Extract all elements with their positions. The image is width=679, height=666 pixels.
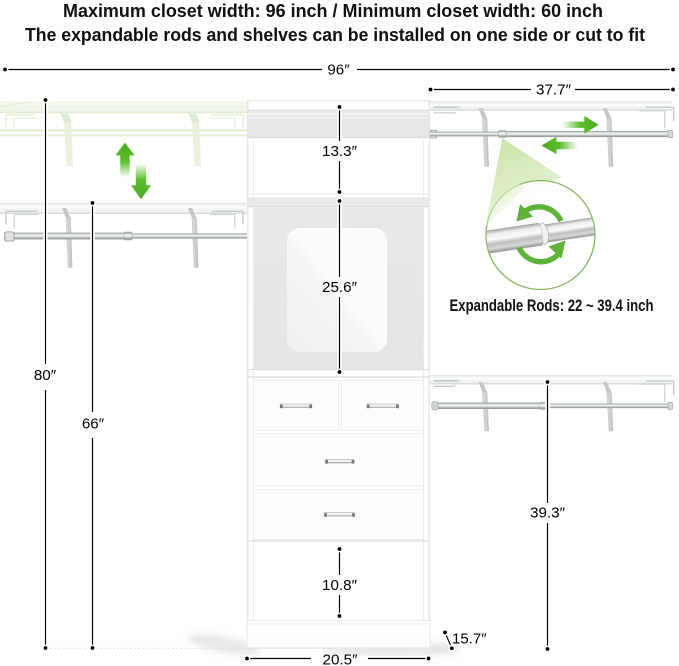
svg-text:96″: 96″ [327,61,350,78]
svg-text:80″: 80″ [34,367,57,384]
svg-text:Expandable Rods: 22 ~ 39.4 inc: Expandable Rods: 22 ~ 39.4 inch [450,296,654,315]
svg-text:Maximum closet width: 96 inch: Maximum closet width: 96 inch / Minimum … [63,1,603,21]
svg-text:15.7″: 15.7″ [452,631,487,648]
svg-text:13.3″: 13.3″ [322,143,358,160]
svg-text:25.6″: 25.6″ [322,279,358,296]
svg-text:10.8″: 10.8″ [322,577,358,594]
svg-text:66″: 66″ [82,416,105,433]
svg-text:20.5″: 20.5″ [323,651,359,666]
svg-text:The expandable rods and shelve: The expandable rods and shelves can be i… [25,25,645,45]
svg-text:37.7″: 37.7″ [536,82,572,99]
svg-text:39.3″: 39.3″ [530,505,566,522]
